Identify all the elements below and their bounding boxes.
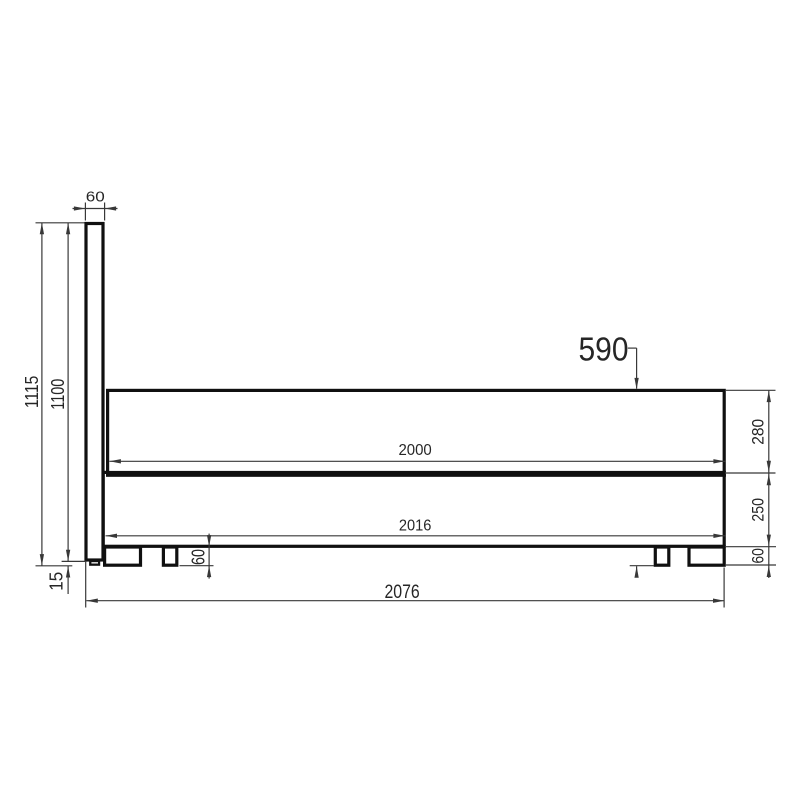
svg-text:280: 280 <box>750 419 768 445</box>
svg-text:60: 60 <box>189 549 209 565</box>
svg-text:60: 60 <box>750 548 768 564</box>
svg-text:250: 250 <box>750 498 768 522</box>
svg-text:1115: 1115 <box>22 376 42 409</box>
svg-text:15: 15 <box>46 572 66 591</box>
svg-text:2016: 2016 <box>399 517 432 534</box>
svg-text:60: 60 <box>86 190 105 206</box>
svg-text:2000: 2000 <box>398 442 432 459</box>
svg-text:590: 590 <box>579 331 629 368</box>
svg-text:1100: 1100 <box>48 379 68 410</box>
svg-text:2076: 2076 <box>384 581 419 603</box>
